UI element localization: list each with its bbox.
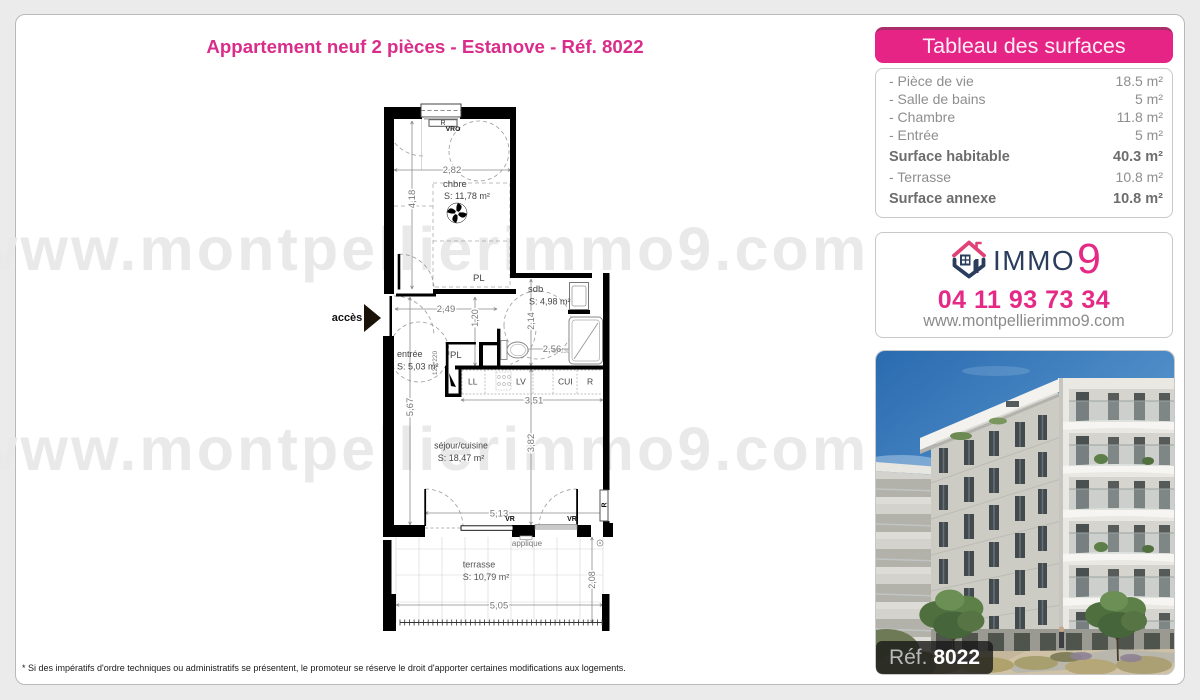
svg-text:5,67: 5,67: [405, 398, 416, 417]
svg-text:5,05: 5,05: [490, 601, 509, 612]
svg-text:IMMO: IMMO: [993, 245, 1075, 276]
svg-text:applique: applique: [512, 539, 543, 548]
svg-text:LL: LL: [468, 377, 478, 387]
svg-text:3,82: 3,82: [526, 434, 537, 453]
svg-text:R: R: [587, 377, 593, 387]
svg-text:www.montpellierimmo9.com: www.montpellierimmo9.com: [0, 215, 869, 283]
svg-text:VR: VR: [567, 516, 577, 523]
svg-text:2,08: 2,08: [587, 571, 597, 589]
svg-text:PL: PL: [473, 273, 485, 284]
svg-text:LV: LV: [516, 377, 526, 387]
svg-text:sdb: sdb: [528, 284, 543, 295]
svg-text:S: 4,98 m²: S: 4,98 m²: [529, 297, 571, 307]
svg-text:VRO: VRO: [446, 126, 461, 133]
svg-text:R: R: [602, 502, 609, 507]
svg-text:1,20: 1,20: [470, 309, 480, 327]
svg-text:S: 18,47 m²: S: 18,47 m²: [438, 453, 485, 463]
svg-text:2,82: 2,82: [443, 165, 462, 176]
svg-text:séjour/cuisine: séjour/cuisine: [434, 441, 488, 451]
svg-text:2,14: 2,14: [526, 312, 536, 330]
svg-text:2,49: 2,49: [437, 304, 456, 315]
svg-text:3,51: 3,51: [525, 396, 544, 407]
svg-text:120*220: 120*220: [432, 351, 439, 376]
svg-text:60*130: 60*130: [552, 349, 569, 355]
svg-text:accès: accès: [332, 312, 363, 324]
svg-text:S: 10,79 m²: S: 10,79 m²: [463, 572, 510, 582]
svg-text:terrasse: terrasse: [463, 560, 496, 570]
svg-text:CUI: CUI: [558, 377, 573, 387]
svg-text:VR: VR: [505, 516, 515, 523]
svg-text:PL: PL: [450, 350, 462, 361]
svg-text:chbre: chbre: [443, 179, 467, 190]
svg-text:entrée: entrée: [397, 349, 423, 359]
svg-text:4,18: 4,18: [407, 190, 418, 209]
svg-text:9: 9: [1077, 238, 1101, 280]
svg-text:S: 11,78 m²: S: 11,78 m²: [444, 191, 490, 201]
